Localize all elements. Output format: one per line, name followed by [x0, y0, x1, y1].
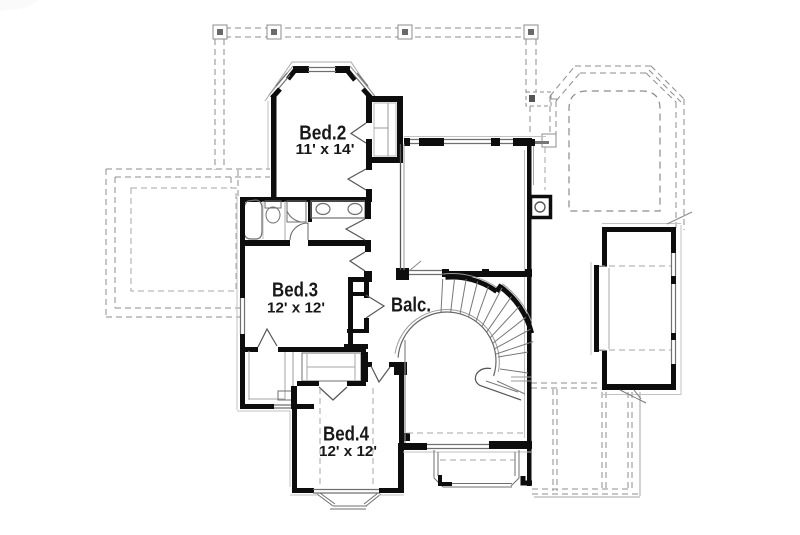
svg-text:Bed.4: Bed.4 — [323, 424, 370, 446]
svg-text:12' x 12': 12' x 12' — [267, 301, 325, 317]
svg-text:11' x 14': 11' x 14' — [296, 142, 355, 158]
svg-text:Bed.3: Bed.3 — [272, 280, 318, 302]
svg-text:12' x 12': 12' x 12' — [319, 444, 377, 460]
svg-text:Balc.: Balc. — [391, 295, 431, 317]
